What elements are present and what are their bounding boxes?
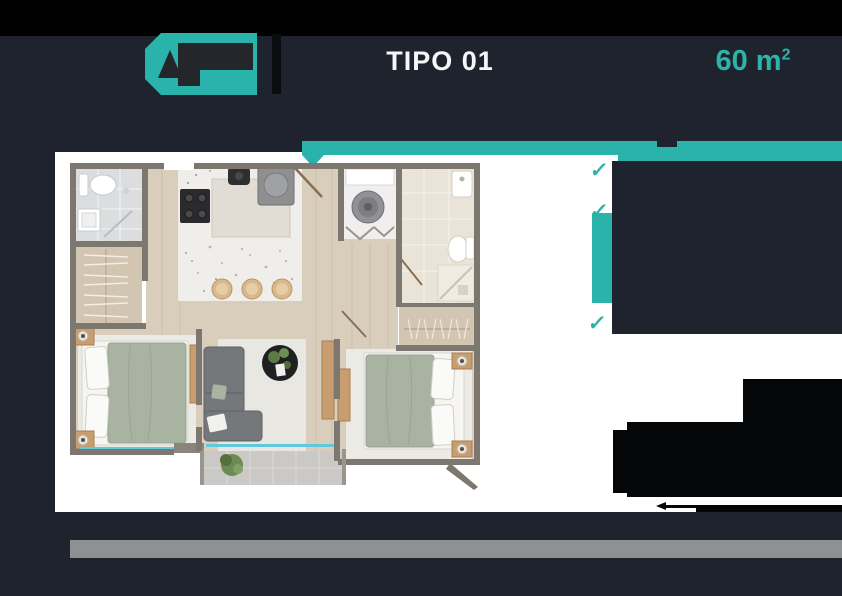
logo-wordmark-block-small [178,70,200,86]
laundry-closet [344,167,396,239]
bedroom-left [72,327,196,449]
site-figure-block [743,379,842,497]
balcony [204,451,342,485]
console [322,341,334,419]
logo-wordmark-block [178,43,253,70]
area-label: 60 m2 [688,45,818,78]
bathroom-right [399,167,474,303]
kitchen [178,165,302,301]
check-icon: ✓ [582,311,612,337]
cushion [211,384,227,400]
banner-notch [657,141,677,147]
site-figure-bar [696,505,842,512]
toilet-icon [90,175,116,195]
toilet-icon [448,236,468,262]
area-superscript: 2 [782,46,791,63]
area-value: 60 m [715,45,781,77]
brochure-page: TIPO 01 60 m2 [0,0,842,596]
horizontal-scrollbar[interactable] [70,540,842,558]
feature-text-block [612,161,842,334]
site-figure-arrow-line [664,505,697,508]
pillow [431,404,455,445]
bathroom-left [76,169,142,243]
top-black-bar [0,0,842,36]
pillow [85,346,110,389]
feature-highlight-block [592,213,612,303]
toilet-tank [79,174,88,196]
banner-bar [302,141,842,155]
site-figure-block [627,422,743,497]
logo-divider-bar [272,34,281,94]
brand-logo-icon [145,33,257,95]
left-arrow-icon [656,502,666,510]
stove-icon [180,189,210,223]
page-title: TIPO 01 [300,46,580,77]
bar-stools [212,279,292,299]
check-icon: ✓ [584,158,614,184]
floor-plan-image [70,163,480,490]
sink-icon [452,171,472,197]
site-figure-block [613,430,627,493]
